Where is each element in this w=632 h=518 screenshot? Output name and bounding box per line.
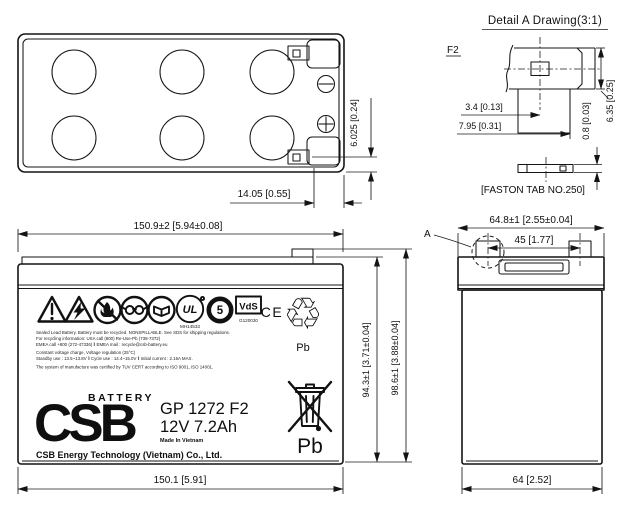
label-line-3: EMEA call +800 (272-47336) ‖ EMEA mail :… [36, 342, 168, 347]
ul-mark-icon: UL MH14533 [177, 296, 204, 329]
dim-side-terminal-spacing: 45 [1.77] [488, 235, 580, 248]
ce-mark: CE [261, 304, 283, 320]
bin-pb-text: Pb [297, 435, 323, 458]
ul-number: MH14533 [180, 324, 200, 329]
dim-side-overall-width-text: 64.8±1 [2.55±0.04] [489, 215, 572, 226]
dim-front-base-width-text: 150.1 [5.91] [154, 475, 207, 486]
label-line-6: The system of manufacture was certified … [36, 365, 213, 370]
negative-terminal-recess [288, 137, 340, 165]
recycle-pb-text: Pb [296, 342, 309, 354]
detail-a-callout: A [424, 229, 504, 268]
label-line-4: Constant voltage charge, Voltage regulat… [36, 350, 136, 355]
dim-detail-tab-thickness: 0.8 [0.03] [574, 102, 602, 190]
warning-electric-icon [66, 297, 93, 322]
dim-detail-base-width: 7.95 [0.31] [457, 92, 570, 139]
csb-logo: CSB [34, 394, 136, 453]
phillips-screw-icon [318, 116, 335, 133]
top-view-outer-case [18, 34, 344, 172]
recycle-number-text: 5 [217, 305, 224, 317]
no-fire-icon [95, 297, 121, 323]
dim-front-case-height-text: 94.3±1 [3.71±0.04] [361, 323, 371, 398]
model-text: GP 1272 F2 [160, 400, 249, 418]
positive-terminal-recess [288, 40, 340, 68]
dim-front-overall-width-text: 150.9±2 [5.94±0.08] [134, 221, 223, 232]
label-fine-print: Sealed Lead Battery. Battery must be rec… [36, 330, 230, 370]
brand-block: BATTERY CSB GP 1272 F2 12V 7.2Ah Made In… [34, 392, 249, 460]
battery-datasheet-drawing: 6.025 [0.24] 14.05 [0.55] Detail A Drawi… [0, 0, 632, 518]
recycle-5-icon: 5 [209, 299, 231, 321]
slotted-screw-icon [318, 76, 335, 93]
label-line-2: For recycling information: USA call (800… [36, 336, 161, 341]
crossed-bin-icon: Pb [289, 382, 331, 458]
detail-title: Detail A Drawing(3:1) [488, 15, 602, 27]
front-view: 150.9±2 [5.94±0.08] [18, 221, 412, 494]
vds-mark-text: VdS [239, 302, 257, 313]
warning-exclamation-icon [39, 297, 66, 322]
detail-a-marker-text: A [424, 229, 431, 240]
faston-caption: [FASTON TAB NO.250] [481, 185, 585, 196]
front-terminal-tab [292, 249, 313, 257]
dim-side-base-width-text: 64 [2.52] [513, 475, 552, 486]
terminal-type-label: F2 [447, 45, 459, 56]
dim-detail-tab-width-text: 6.35 [0.25] [605, 80, 615, 123]
ul-mark-text: UL [183, 304, 198, 316]
origin-text: Made In Vietnam [160, 438, 203, 444]
top-view: 6.025 [0.24] 14.05 [0.55] [18, 34, 377, 208]
goggles-icon [122, 297, 148, 323]
label-line-1: Sealed Lead Battery. Battery must be rec… [36, 330, 230, 335]
recycle-symbol: ♲ [283, 290, 322, 339]
dim-front-case-height: 94.3±1 [3.71±0.04] [316, 257, 383, 462]
rating-text: 12V 7.2Ah [160, 418, 237, 436]
dim-top-tab-inset-text: 14.05 [0.55] [238, 189, 291, 200]
side-view: 64.8±1 [2.55±0.04] 45 [1.77] A 64 [2.52] [424, 215, 604, 494]
dim-top-tab-inset: 14.05 [0.55] [230, 168, 362, 208]
dim-detail-hole-offset: 3.4 [0.13] [461, 102, 540, 115]
dim-front-overall-width: 150.9±2 [5.94±0.08] [18, 221, 343, 252]
front-lid-plateau [22, 257, 313, 264]
dim-detail-base-width-text: 7.95 [0.31] [459, 121, 502, 131]
vds-badge: VdS G120030 [236, 297, 261, 324]
detail-a-drawing: Detail A Drawing(3:1) F2 3.4 [0.13] 7.95… [446, 15, 615, 196]
battery-label: UL MH14533 5 VdS G120030 CE ♲ Pb Sealed … [34, 290, 331, 460]
faston-tab-flat-view [518, 157, 573, 182]
detail-a-leader [434, 235, 471, 247]
side-case [462, 290, 602, 464]
handle-recess [499, 260, 569, 274]
dim-detail-tab-width: 6.35 [0.25] [596, 48, 615, 122]
read-manual-icon [149, 297, 175, 323]
terminal-base [518, 89, 570, 133]
recycle-pb-icon: ♲ Pb [283, 290, 322, 354]
company-text: CSB Energy Technology (Vietnam) Co., Ltd… [36, 450, 222, 460]
dim-detail-tab-thickness-text: 0.8 [0.03] [581, 102, 591, 140]
handle-recess-inner [505, 263, 563, 271]
drawing-canvas: 6.025 [0.24] 14.05 [0.55] Detail A Drawi… [0, 0, 632, 518]
dim-detail-hole-offset-text: 3.4 [0.13] [465, 102, 503, 112]
label-line-5: Standby use : 13.5~13.8V ‖ Cycle use : 1… [36, 356, 193, 361]
break-line [506, 45, 513, 92]
dim-front-total-height-text: 98.6±1 [3.88±0.04] [390, 321, 400, 396]
dim-side-terminal-spacing-text: 45 [1.77] [515, 235, 554, 246]
dim-side-base-width: 64 [2.52] [462, 467, 602, 494]
dim-top-terminal-edge-text: 6.025 [0.24] [349, 99, 359, 147]
vent-circles [52, 50, 294, 160]
vds-number: G120030 [239, 318, 258, 323]
dim-front-base-width: 150.1 [5.91] [18, 467, 343, 494]
